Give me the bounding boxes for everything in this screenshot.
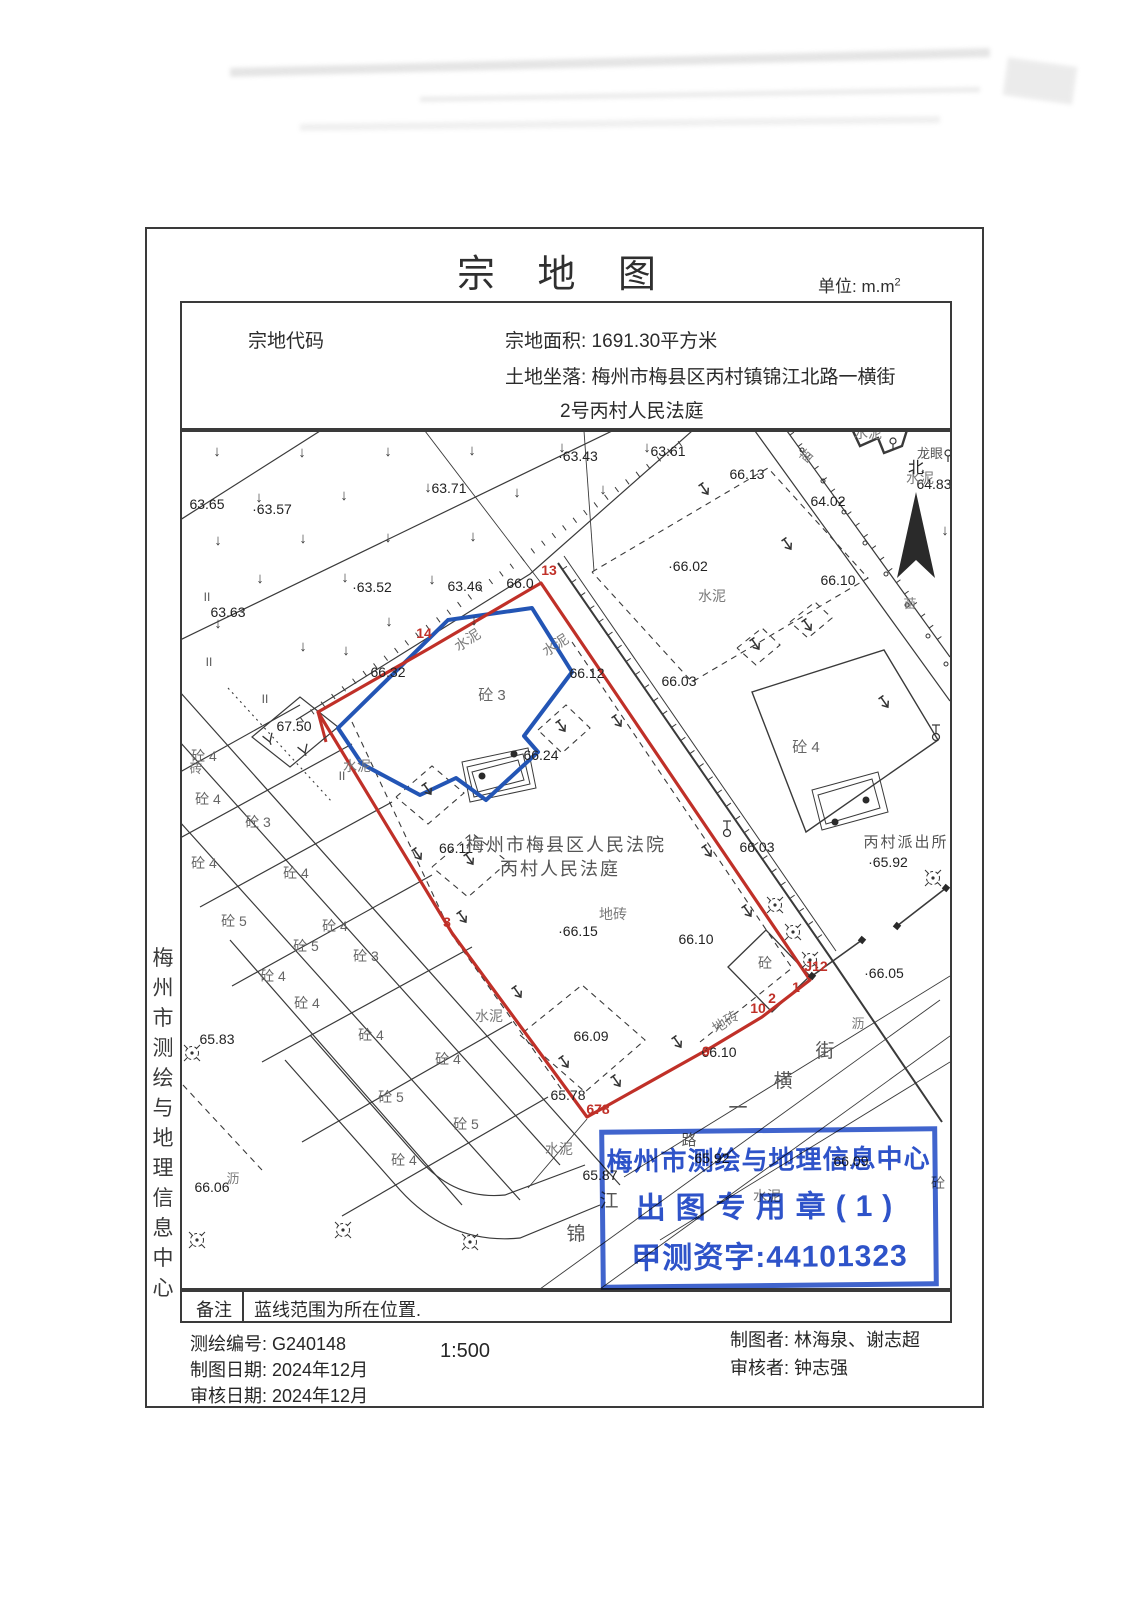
stamp-agency: 梅州市测绘与地理信息中心: [606, 1138, 930, 1178]
map-label: 砼 3: [478, 687, 506, 704]
agency-title-char: 测: [153, 1034, 174, 1064]
map-hatch-tick: [781, 882, 785, 885]
map-label: 水泥: [475, 1008, 503, 1024]
map-label: 砼 5: [378, 1089, 404, 1105]
grass-symbol: ↓: [468, 442, 476, 459]
map-hatch-tick: [572, 579, 576, 582]
tree-symbol: [791, 930, 794, 933]
tree-symbol: [196, 1057, 200, 1061]
shrub-symbol: [671, 1035, 684, 1049]
tree-symbol: [797, 936, 801, 940]
grass-symbol: ↓: [384, 443, 392, 460]
agency-title-char: 地: [153, 1124, 174, 1154]
tree-symbol: [779, 897, 783, 901]
map-hatch-tick: [699, 764, 703, 767]
map-hatch-tick: [809, 921, 813, 924]
map-hatch-tick: [798, 443, 802, 446]
map-hatch-tick: [905, 591, 909, 594]
map-label: 66.10: [820, 572, 855, 588]
map-label: 3: [443, 914, 451, 930]
grass-symbol: ↓: [941, 522, 949, 539]
map-hatch-tick: [814, 466, 818, 469]
map-hatch-tick: [615, 487, 619, 492]
shrub-symbol: [741, 904, 754, 918]
map-label: 北: [908, 459, 924, 477]
draw-date: 制图日期: 2024年12月: [190, 1356, 368, 1382]
map-label: 65.78: [550, 1087, 585, 1103]
map-line: [296, 432, 692, 720]
tree-symbol: [785, 924, 789, 928]
map-label: II: [204, 590, 211, 604]
shrub-symbol: [701, 844, 714, 858]
map-hatch-tick: [800, 908, 804, 911]
map-hatch-tick: [395, 648, 399, 653]
map-hatch-tick: [888, 568, 892, 571]
tree-symbol: [335, 1234, 339, 1238]
agency-title-char: 心: [153, 1274, 174, 1304]
map-label: 水泥: [343, 758, 371, 774]
map-label: 14: [416, 625, 432, 641]
map-scale: 1:500: [440, 1340, 490, 1363]
map-hatch-tick: [672, 724, 676, 727]
map-label: 砼 4: [294, 995, 320, 1011]
map-label: II: [206, 655, 213, 669]
map-hatch-tick: [458, 602, 462, 607]
shrub-symbol: [555, 719, 568, 733]
tree-symbol: [462, 1234, 466, 1238]
map-building: [897, 492, 935, 578]
map-label: 67.50: [276, 718, 311, 734]
map-label: 9: [702, 1043, 710, 1059]
tree-symbol: [184, 1057, 188, 1061]
utility-pole-symbol: [724, 830, 731, 837]
map-label: 水泥: [854, 432, 882, 441]
vegetation-dot: [863, 541, 867, 545]
map-label: ·66.15: [558, 923, 598, 939]
grass-symbol: ↓: [340, 487, 348, 504]
map-label: 66.10: [678, 931, 713, 947]
map-label: 砼 3: [353, 948, 379, 964]
shrub-symbol: [558, 1055, 571, 1069]
map-label: 2: [768, 990, 776, 1006]
map-hatch-tick: [872, 546, 876, 549]
agency-title-char: 理: [153, 1154, 174, 1184]
map-label: 63.71: [431, 480, 466, 496]
map-label: 丙村派出所: [863, 834, 948, 851]
map-hatch-tick: [709, 777, 713, 780]
grass-symbol: ↓: [384, 529, 392, 546]
map-label: 66.13: [729, 466, 764, 482]
tree-symbol: [767, 909, 771, 913]
map-hatch-tick: [563, 525, 567, 530]
map-hatch-tick: [791, 895, 795, 898]
grass-symbol: ↓: [298, 444, 306, 461]
map-hatch-tick: [594, 502, 598, 507]
map-hatch-tick: [447, 610, 451, 615]
map-hatch-tick: [590, 606, 594, 609]
map-building: [752, 650, 938, 832]
tree-symbol: [931, 876, 934, 879]
map-label: ·63.57: [252, 501, 292, 517]
scan-artifact: [300, 116, 940, 131]
map-label: 砼 5: [221, 913, 247, 929]
map-label: 66.09: [573, 1028, 608, 1044]
map-label: 砼 3: [245, 814, 271, 830]
map-hatch-tick: [363, 671, 367, 676]
shrub-symbol: [456, 910, 469, 924]
fruit-tree-symbol: [890, 438, 896, 444]
vegetation-dot: [926, 634, 930, 638]
map-label: 苗: [903, 596, 916, 611]
map-label: 水泥: [545, 1141, 573, 1157]
map-label: 砼: [758, 955, 772, 971]
map-dashed-line: [396, 766, 464, 824]
map-label: II: [339, 769, 346, 783]
map-label: 一: [728, 1098, 747, 1119]
agency-title-char: 市: [153, 1004, 174, 1034]
map-label: 水泥: [698, 588, 726, 604]
notes-label: 备注: [196, 1296, 232, 1322]
map-hatch-tick: [581, 593, 585, 596]
map-label: ·65.92: [868, 854, 908, 870]
map-label: 63.61: [650, 443, 685, 459]
tree-symbol: [201, 1244, 205, 1248]
map-dashed-line: [183, 1085, 262, 1170]
map-label: 地砖: [599, 906, 627, 922]
drafter: 制图者: 林海泉、谢志超: [730, 1326, 920, 1352]
map-hatch-tick: [663, 711, 667, 714]
map-label: 13: [541, 562, 557, 578]
building-dot: [511, 751, 518, 758]
map-line: [342, 1097, 548, 1216]
map-label: 66.06: [194, 1179, 229, 1195]
map-hatch-tick: [599, 619, 603, 622]
grass-symbol: ↓: [341, 569, 349, 586]
map-hatch-tick: [727, 803, 731, 806]
map-hatch-tick: [636, 672, 640, 675]
map-hatch-tick: [745, 829, 749, 832]
tree-symbol: [184, 1045, 188, 1049]
grass-symbol: ↓: [469, 528, 477, 545]
map-line: [182, 432, 612, 640]
tree-symbol: [341, 1228, 344, 1231]
grass-symbol: ↓: [428, 571, 436, 588]
parcel-area: 宗地面积: 1691.30平方米: [505, 326, 717, 353]
map-label: 砼 5: [293, 938, 319, 954]
map-hatch-tick: [864, 534, 868, 537]
map-label: ·63.52: [352, 579, 392, 595]
stamp-purpose: 出图专用章(1): [635, 1181, 902, 1228]
grass-symbol: ↓: [599, 481, 607, 498]
agency-title-char: 信: [153, 1184, 174, 1214]
tree-symbol: [925, 882, 929, 886]
review-date: 审核日期: 2024年12月: [190, 1382, 368, 1408]
grass-symbol: ↓: [342, 642, 350, 659]
map-hatch-tick: [521, 556, 525, 561]
map-label: ·63.43: [558, 448, 598, 464]
tree-symbol: [468, 1240, 471, 1243]
map-hatch-tick: [937, 637, 941, 640]
grass-symbol: ↓: [213, 443, 221, 460]
scan-artifact: [1003, 57, 1078, 104]
map-label: 63.46: [447, 578, 482, 594]
map-hatch-tick: [790, 432, 794, 435]
map-hatch-tick: [510, 564, 514, 569]
agency-title-char: 中: [153, 1244, 174, 1274]
map-hatch-tick: [736, 816, 740, 819]
blue-parcel-boundary: [338, 608, 572, 800]
map-label: 64.02: [810, 493, 845, 509]
map-hatch-tick: [818, 935, 822, 938]
map-label: 66.03: [661, 673, 696, 689]
tree-symbol: [195, 1238, 198, 1241]
map-hatch-tick: [645, 685, 649, 688]
map-label: II: [262, 692, 269, 706]
grass-symbol: ↓: [214, 532, 222, 549]
map-label: 水泥: [451, 625, 483, 654]
shrub-symbol: [878, 695, 891, 709]
map-label: 砼 4: [191, 748, 217, 764]
parcel-code-label: 宗地代码: [248, 326, 324, 353]
map-label: 沥: [226, 1171, 239, 1186]
map-label: 砼 4: [260, 968, 286, 984]
map-hatch-tick: [763, 856, 767, 859]
map-label: 63.65: [189, 496, 224, 512]
map-hatch-tick: [831, 489, 835, 492]
map-label: 66.0: [506, 575, 533, 591]
agency-vertical-title: 梅州市测绘与地理信息中心: [146, 944, 180, 1304]
map-hatch-tick: [626, 479, 630, 484]
tree-symbol: [779, 909, 783, 913]
map-hatch-tick: [772, 869, 776, 872]
fruit-tree-symbol: [945, 450, 950, 456]
map-line: [897, 888, 946, 926]
map-label: 龙眼: [917, 446, 943, 461]
map-label: 锦: [566, 1223, 585, 1245]
notes-divider: [242, 1292, 244, 1321]
map-hatch-tick: [563, 566, 567, 569]
map-label: 66.32: [370, 664, 405, 680]
tree-symbol: [201, 1232, 205, 1236]
map-hatch-tick: [896, 580, 900, 583]
map-label: 砼 4: [358, 1027, 384, 1043]
notes-value: 蓝线范围为所在位置.: [254, 1296, 421, 1322]
building-dot: [832, 819, 839, 826]
tree-symbol: [347, 1222, 351, 1226]
survey-number: 测绘编号: G240148: [190, 1330, 346, 1356]
tree-symbol: [189, 1244, 193, 1248]
shrub-symbol: [781, 537, 794, 551]
grass-symbol: ↓: [256, 570, 264, 587]
map-label: 梅州市梅县区人民法院: [466, 835, 666, 855]
map-label: 街: [815, 1040, 834, 1062]
shrub-symbol: [698, 482, 711, 496]
grass-symbol: ↓: [385, 613, 393, 630]
map-hatch-tick: [636, 472, 640, 477]
shrub-symbol: [801, 618, 814, 632]
map-label: 砼 5: [453, 1116, 479, 1132]
map-hatch-tick: [573, 518, 577, 523]
land-location: 土地坐落: 梅州市梅县区丙村镇锦江北路一横街: [505, 362, 896, 389]
flag-symbol: [263, 733, 276, 747]
vegetation-dot: [884, 572, 888, 576]
map-label: J12: [804, 958, 828, 974]
map-hatch-tick: [690, 750, 694, 753]
map-label: ·66.02: [668, 558, 708, 574]
tree-symbol: [797, 924, 801, 928]
tree-symbol: [773, 903, 776, 906]
shrub-symbol: [511, 985, 524, 999]
map-line: [182, 692, 620, 1185]
tree-symbol: [767, 897, 771, 901]
grass-symbol: ↓: [299, 638, 307, 655]
agency-title-char: 州: [153, 974, 174, 1004]
map-line: [200, 802, 392, 907]
tree-symbol: [474, 1246, 478, 1250]
tree-symbol: [814, 952, 818, 956]
tree-symbol: [802, 952, 806, 956]
map-hatch-tick: [353, 679, 357, 684]
map-hatch-tick: [681, 737, 685, 740]
grass-symbol: ↓: [513, 484, 521, 501]
map-label: 砼 4: [191, 855, 217, 871]
map-hatch-tick: [921, 614, 925, 617]
map-hatch-tick: [437, 617, 441, 622]
map-label: 65.83: [199, 1031, 234, 1047]
agency-title-char: 息: [153, 1214, 174, 1244]
map-label: 水泥: [539, 630, 571, 659]
vegetation-dot: [944, 662, 948, 666]
scan-artifact: [230, 48, 990, 77]
map-label: 10: [750, 1000, 766, 1016]
tree-symbol: [462, 1246, 466, 1250]
map-label: 横: [773, 1070, 792, 1092]
unit-label: 单位: m.m2: [818, 272, 901, 297]
map-label: 66.24: [523, 747, 558, 763]
map-hatch-tick: [384, 656, 388, 661]
map-hatch-tick: [584, 510, 588, 515]
map-hatch-tick: [608, 632, 612, 635]
agency-title-char: 绘: [153, 1064, 174, 1094]
agency-title-char: 与: [153, 1094, 174, 1124]
map-line: [182, 822, 520, 1200]
map-label: 63.63: [210, 604, 245, 620]
map-hatch-tick: [542, 541, 546, 546]
map-label: 砼 4: [195, 791, 221, 807]
map-label: 砼 4: [391, 1152, 417, 1168]
map-label: 678: [586, 1101, 610, 1117]
map-label: 砼 4: [283, 865, 309, 881]
map-line: [302, 1022, 512, 1142]
official-stamp: 梅州市测绘与地理信息中心 出图专用章(1) 甲测资字:44101323: [599, 1126, 939, 1290]
map-hatch-tick: [500, 571, 504, 576]
map-label: 66.03: [739, 839, 774, 855]
map-label: 沥: [851, 1016, 864, 1031]
map-hatch-tick: [405, 640, 409, 645]
map-hatch-tick: [552, 533, 556, 538]
map-label: 丙村人民法庭: [500, 859, 620, 879]
map-label: 砼 4: [435, 1051, 461, 1067]
map-hatch-tick: [654, 698, 658, 701]
building-dot: [863, 797, 870, 804]
map-label: 1: [792, 979, 800, 995]
map-hatch-tick: [929, 625, 933, 628]
map-hatch-tick: [880, 557, 884, 560]
map-hatch-tick: [647, 464, 651, 469]
tree-symbol: [937, 870, 941, 874]
map-label: 砼 4: [792, 739, 820, 756]
map-label: 砼 4: [322, 918, 348, 934]
map-hatch-tick: [627, 658, 631, 661]
map-label: ·66.05: [864, 965, 904, 981]
agency-title-char: 梅: [153, 944, 174, 974]
map-hatch-tick: [468, 594, 472, 599]
map-label: 66.12: [569, 665, 604, 681]
stamp-license: 甲测资字:44101323: [631, 1231, 908, 1278]
map-hatch-tick: [617, 645, 621, 648]
scan-artifact: [420, 87, 980, 102]
grass-symbol: ↓: [299, 530, 307, 547]
map-hatch-tick: [855, 523, 859, 526]
map-hatch-tick: [531, 548, 535, 553]
shrub-symbol: [610, 1074, 623, 1088]
tree-symbol: [785, 936, 789, 940]
map-hatch-tick: [718, 790, 722, 793]
building-dot: [479, 773, 486, 780]
tree-symbol: [190, 1051, 193, 1054]
reviewer: 审核者: 钟志强: [730, 1354, 848, 1380]
tree-symbol: [189, 1232, 193, 1236]
tree-symbol: [937, 882, 941, 886]
map-hatch-tick: [489, 579, 493, 584]
shrub-symbol: [411, 847, 424, 861]
tree-symbol: [347, 1234, 351, 1238]
shrub-symbol: [749, 637, 762, 651]
map-dashed-line: [790, 602, 832, 638]
tree-symbol: [335, 1222, 339, 1226]
land-location-line2: 2号丙村人民法庭: [560, 396, 704, 423]
map-hatch-tick: [847, 512, 851, 515]
scanned-page: 宗 地 图 单位: m.m2 宗地代码 宗地面积: 1691.30平方米 土地坐…: [0, 0, 1129, 1600]
tree-symbol: [925, 870, 929, 874]
